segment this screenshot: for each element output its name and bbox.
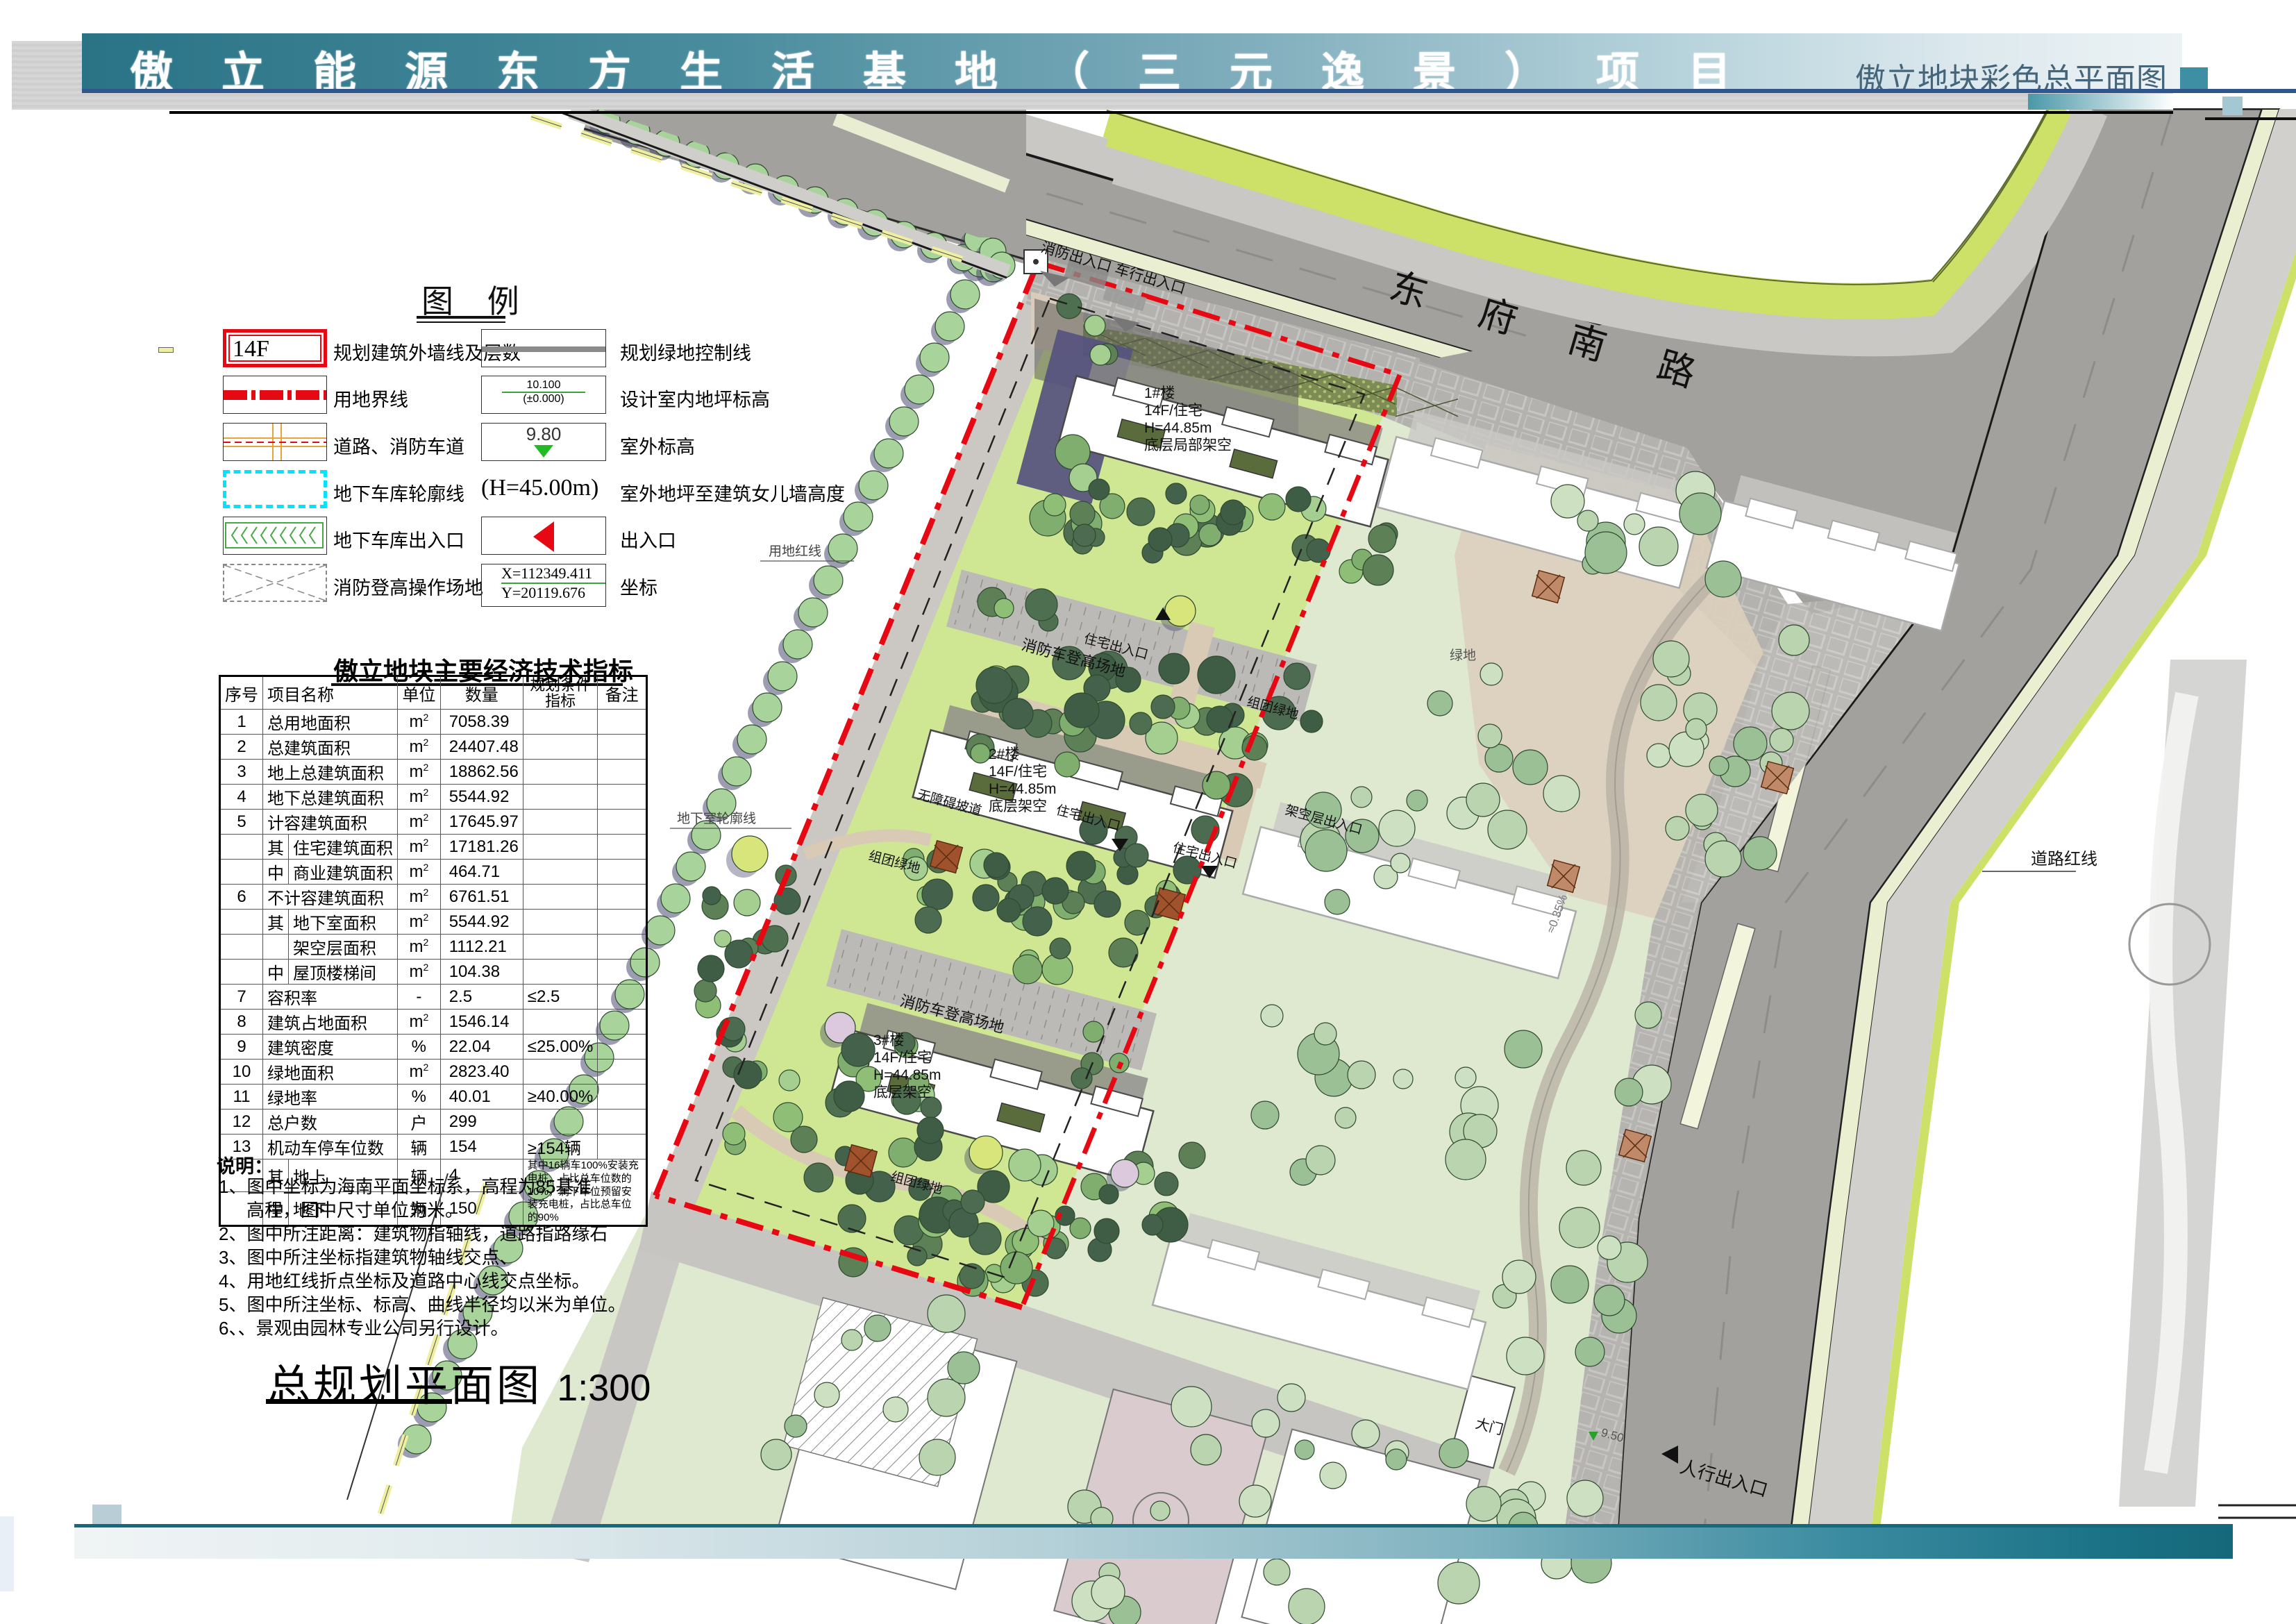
svg-text:H=44.85m: H=44.85m bbox=[1144, 420, 1212, 436]
svg-text:3#楼: 3#楼 bbox=[873, 1032, 904, 1048]
svg-text:14F/住宅: 14F/住宅 bbox=[873, 1050, 932, 1066]
svg-text:14F/住宅: 14F/住宅 bbox=[1144, 403, 1203, 419]
svg-text:H=44.85m: H=44.85m bbox=[989, 781, 1056, 797]
svg-text:底层局部架空: 底层局部架空 bbox=[1144, 437, 1232, 453]
svg-text:2#楼: 2#楼 bbox=[989, 746, 1019, 762]
svg-text:用地红线: 用地红线 bbox=[769, 544, 821, 559]
svg-text:道路红线: 道路红线 bbox=[2031, 850, 2097, 869]
svg-text:底层架空: 底层架空 bbox=[873, 1085, 932, 1100]
svg-text:绿地: 绿地 bbox=[1450, 648, 1476, 663]
svg-text:1#楼: 1#楼 bbox=[1144, 385, 1175, 401]
svg-text:底层架空: 底层架空 bbox=[989, 798, 1047, 814]
svg-text:H=44.85m: H=44.85m bbox=[873, 1067, 941, 1083]
svg-text:14F/住宅: 14F/住宅 bbox=[989, 764, 1047, 780]
svg-text:地下室轮廓线: 地下室轮廓线 bbox=[677, 811, 756, 826]
